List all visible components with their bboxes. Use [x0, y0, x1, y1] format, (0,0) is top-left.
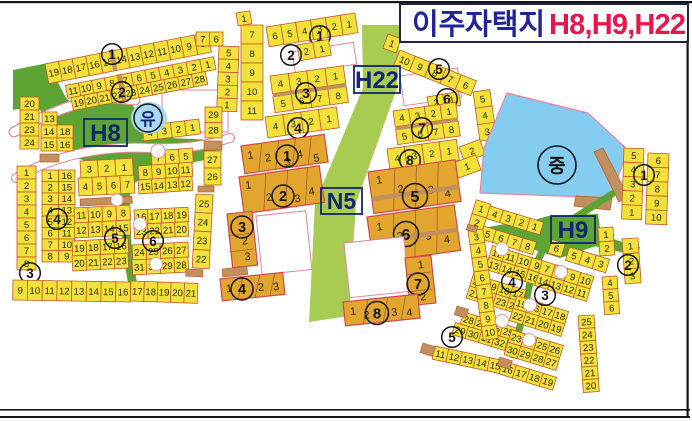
- svg-text:31: 31: [134, 262, 145, 274]
- svg-text:5: 5: [448, 330, 456, 345]
- svg-text:1: 1: [24, 168, 29, 179]
- svg-text:중: 중: [548, 156, 565, 177]
- svg-text:13: 13: [461, 354, 474, 367]
- svg-text:7: 7: [200, 35, 205, 46]
- svg-text:24: 24: [24, 138, 35, 149]
- svg-text:6: 6: [149, 234, 157, 249]
- svg-text:8: 8: [142, 168, 148, 179]
- svg-text:18: 18: [60, 127, 71, 138]
- svg-text:24: 24: [197, 217, 209, 229]
- svg-text:5: 5: [97, 181, 103, 192]
- svg-text:2: 2: [279, 189, 287, 205]
- svg-text:18: 18: [61, 64, 74, 77]
- svg-text:12: 12: [180, 179, 191, 191]
- svg-text:7: 7: [24, 246, 29, 257]
- svg-text:18: 18: [145, 287, 156, 298]
- svg-text:7: 7: [48, 240, 53, 251]
- svg-text:6: 6: [609, 303, 615, 314]
- svg-text:8: 8: [120, 208, 126, 219]
- svg-text:26: 26: [162, 246, 173, 258]
- svg-text:2: 2: [629, 193, 635, 204]
- svg-text:3: 3: [238, 220, 246, 236]
- svg-text:1: 1: [629, 208, 635, 219]
- svg-text:1: 1: [224, 100, 230, 111]
- svg-text:19: 19: [73, 97, 86, 110]
- svg-text:24: 24: [134, 247, 146, 259]
- svg-text:19: 19: [176, 210, 187, 222]
- svg-text:6: 6: [48, 229, 53, 240]
- svg-text:9: 9: [17, 286, 23, 297]
- svg-text:21: 21: [24, 112, 35, 123]
- svg-text:27: 27: [176, 245, 187, 257]
- svg-text:13: 13: [90, 225, 101, 237]
- svg-text:20: 20: [74, 258, 85, 270]
- svg-text:22: 22: [195, 254, 206, 266]
- svg-text:1: 1: [628, 241, 634, 252]
- svg-text:10: 10: [247, 87, 258, 98]
- svg-text:1: 1: [603, 230, 609, 241]
- svg-text:17: 17: [149, 211, 160, 223]
- svg-text:19: 19: [159, 287, 170, 298]
- svg-text:4: 4: [53, 212, 61, 227]
- svg-text:8: 8: [654, 184, 660, 195]
- svg-text:12: 12: [76, 225, 87, 237]
- svg-text:8: 8: [373, 305, 381, 322]
- svg-text:6: 6: [169, 152, 175, 163]
- svg-text:21: 21: [584, 368, 595, 380]
- svg-text:1: 1: [349, 306, 356, 319]
- svg-text:5: 5: [183, 151, 189, 162]
- svg-text:22: 22: [583, 355, 594, 367]
- svg-text:13: 13: [44, 114, 55, 125]
- svg-text:유: 유: [140, 110, 156, 129]
- svg-text:23: 23: [196, 236, 207, 248]
- svg-text:13: 13: [73, 287, 84, 298]
- svg-text:18: 18: [88, 243, 99, 255]
- svg-text:21: 21: [185, 288, 196, 299]
- svg-text:5: 5: [631, 151, 637, 162]
- svg-text:6: 6: [214, 35, 219, 46]
- svg-text:20: 20: [176, 224, 187, 236]
- svg-text:H22: H22: [355, 67, 399, 94]
- svg-text:5: 5: [24, 220, 29, 231]
- svg-text:이주자택지: 이주자택지: [412, 8, 545, 41]
- svg-text:20: 20: [172, 288, 183, 299]
- svg-text:3: 3: [302, 86, 310, 101]
- svg-text:11: 11: [62, 229, 72, 240]
- svg-text:10: 10: [484, 327, 496, 339]
- svg-text:10: 10: [61, 240, 72, 251]
- svg-text:27: 27: [180, 77, 193, 90]
- svg-text:25: 25: [152, 82, 165, 95]
- svg-text:28: 28: [176, 260, 187, 272]
- svg-text:26: 26: [166, 79, 179, 92]
- svg-text:1: 1: [121, 163, 127, 174]
- svg-text:16: 16: [118, 287, 129, 298]
- svg-text:25: 25: [198, 199, 209, 211]
- svg-text:2: 2: [257, 281, 264, 294]
- svg-text:2: 2: [287, 48, 295, 63]
- svg-text:3: 3: [244, 251, 251, 264]
- svg-text:27: 27: [207, 155, 218, 166]
- svg-text:24: 24: [582, 330, 594, 342]
- svg-text:14: 14: [153, 181, 165, 193]
- svg-text:16: 16: [88, 59, 101, 72]
- svg-text:2: 2: [118, 85, 126, 100]
- svg-text:2: 2: [48, 183, 53, 194]
- svg-text:25: 25: [581, 317, 592, 329]
- svg-text:8: 8: [48, 252, 53, 263]
- svg-text:3: 3: [48, 194, 53, 205]
- svg-text:23: 23: [24, 125, 35, 136]
- svg-text:N5: N5: [327, 188, 357, 214]
- svg-text:5: 5: [111, 231, 119, 246]
- svg-text:2: 2: [24, 181, 29, 192]
- svg-text:12: 12: [142, 49, 155, 62]
- svg-text:6: 6: [24, 233, 29, 244]
- svg-text:9: 9: [156, 167, 162, 178]
- svg-text:3: 3: [541, 288, 549, 303]
- svg-text:4: 4: [294, 121, 302, 136]
- svg-text:H8: H8: [90, 120, 121, 147]
- svg-text:20: 20: [24, 99, 35, 110]
- svg-text:10: 10: [90, 210, 101, 222]
- svg-text:2: 2: [225, 87, 231, 98]
- svg-text:15: 15: [61, 183, 72, 194]
- svg-text:1: 1: [48, 171, 53, 182]
- svg-text:3: 3: [272, 281, 279, 294]
- svg-text:17: 17: [75, 62, 88, 75]
- svg-text:15: 15: [103, 287, 114, 298]
- svg-text:3: 3: [225, 74, 231, 85]
- svg-text:5: 5: [411, 189, 420, 206]
- svg-text:16: 16: [60, 140, 71, 151]
- svg-text:10: 10: [167, 166, 178, 178]
- svg-text:11: 11: [247, 106, 257, 117]
- svg-text:26: 26: [207, 172, 218, 183]
- svg-text:14: 14: [44, 127, 55, 138]
- svg-text:15: 15: [140, 182, 151, 194]
- svg-text:4: 4: [406, 307, 413, 320]
- svg-text:H8,H9,H22: H8,H9,H22: [549, 9, 686, 41]
- svg-text:11: 11: [45, 286, 55, 297]
- svg-text:6: 6: [655, 156, 661, 167]
- svg-text:16: 16: [61, 171, 72, 182]
- svg-text:7: 7: [125, 180, 131, 191]
- svg-text:11: 11: [180, 165, 191, 177]
- svg-text:1: 1: [417, 259, 424, 272]
- svg-text:8: 8: [249, 49, 254, 60]
- svg-text:11: 11: [156, 46, 168, 59]
- svg-text:13: 13: [129, 51, 142, 64]
- svg-text:21: 21: [163, 225, 174, 237]
- svg-text:11: 11: [76, 210, 87, 222]
- svg-text:9: 9: [64, 252, 69, 263]
- svg-text:2: 2: [624, 258, 632, 273]
- svg-text:21: 21: [98, 92, 111, 105]
- svg-text:13: 13: [167, 180, 178, 192]
- svg-text:29: 29: [162, 261, 173, 273]
- svg-text:1: 1: [640, 168, 648, 183]
- svg-text:3: 3: [24, 194, 29, 205]
- svg-text:6: 6: [111, 181, 117, 192]
- svg-text:23: 23: [583, 343, 594, 355]
- svg-text:10: 10: [651, 213, 662, 224]
- svg-text:17: 17: [132, 287, 143, 298]
- svg-text:10: 10: [170, 43, 183, 56]
- svg-text:1: 1: [108, 47, 116, 62]
- svg-text:12: 12: [448, 351, 461, 364]
- svg-text:7: 7: [414, 277, 422, 293]
- svg-text:4: 4: [238, 282, 246, 298]
- svg-text:10: 10: [29, 286, 40, 297]
- svg-text:5: 5: [226, 48, 232, 59]
- svg-text:22: 22: [102, 257, 113, 269]
- svg-text:3: 3: [26, 266, 34, 281]
- svg-text:4: 4: [508, 275, 516, 290]
- svg-text:15: 15: [44, 140, 55, 151]
- svg-text:14: 14: [61, 194, 72, 205]
- svg-text:14: 14: [88, 287, 100, 298]
- svg-text:28: 28: [208, 126, 219, 137]
- svg-text:9: 9: [654, 198, 660, 209]
- svg-text:5: 5: [608, 291, 614, 302]
- svg-text:7: 7: [418, 121, 426, 136]
- svg-text:18: 18: [163, 211, 174, 223]
- svg-text:9: 9: [249, 68, 254, 79]
- svg-text:7: 7: [655, 170, 661, 181]
- svg-text:23: 23: [116, 256, 127, 268]
- svg-text:4: 4: [24, 207, 30, 218]
- svg-text:29: 29: [208, 110, 219, 121]
- svg-text:21: 21: [88, 258, 99, 270]
- svg-text:5: 5: [435, 62, 443, 77]
- svg-text:19: 19: [48, 67, 61, 80]
- svg-text:9: 9: [106, 209, 112, 220]
- svg-text:19: 19: [74, 243, 85, 255]
- svg-text:2: 2: [104, 163, 110, 174]
- svg-text:28: 28: [193, 74, 206, 87]
- svg-text:7: 7: [249, 30, 254, 41]
- svg-text:H9: H9: [558, 217, 589, 244]
- svg-text:20: 20: [85, 95, 98, 108]
- svg-text:3: 3: [86, 164, 92, 175]
- svg-text:1: 1: [283, 149, 291, 165]
- svg-text:2: 2: [604, 244, 610, 255]
- svg-text:3: 3: [391, 306, 398, 319]
- svg-text:20: 20: [585, 381, 596, 393]
- svg-text:12: 12: [59, 286, 70, 297]
